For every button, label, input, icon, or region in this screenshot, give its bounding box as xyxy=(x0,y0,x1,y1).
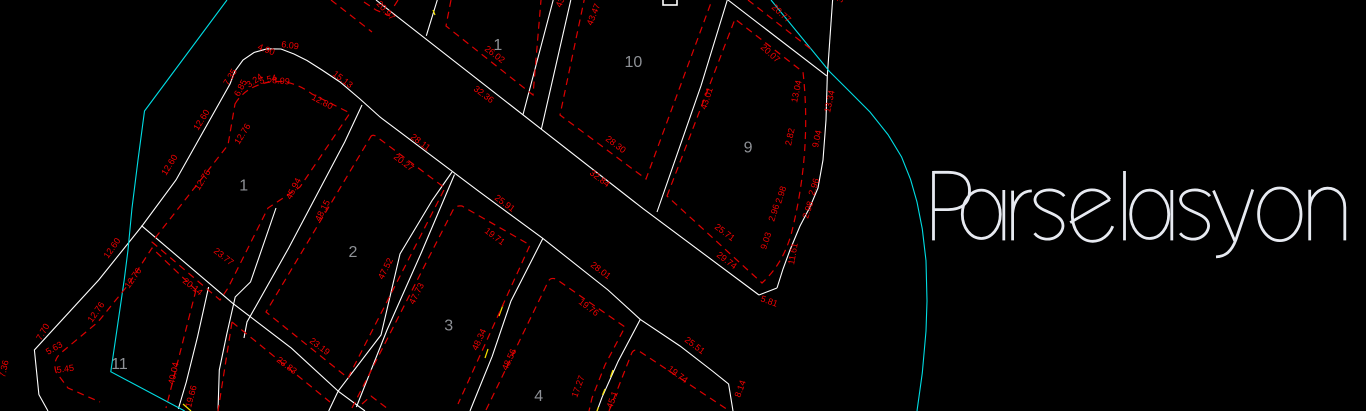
svg-text:2: 2 xyxy=(348,244,357,261)
svg-text:3: 3 xyxy=(444,318,453,335)
svg-text:1: 1 xyxy=(493,37,502,54)
svg-text:1: 1 xyxy=(239,178,248,195)
svg-text:4: 4 xyxy=(534,388,543,405)
svg-text:8.99: 8.99 xyxy=(272,75,290,86)
svg-text:10: 10 xyxy=(625,54,643,71)
svg-text:11: 11 xyxy=(111,356,128,373)
svg-text:9: 9 xyxy=(744,139,753,156)
